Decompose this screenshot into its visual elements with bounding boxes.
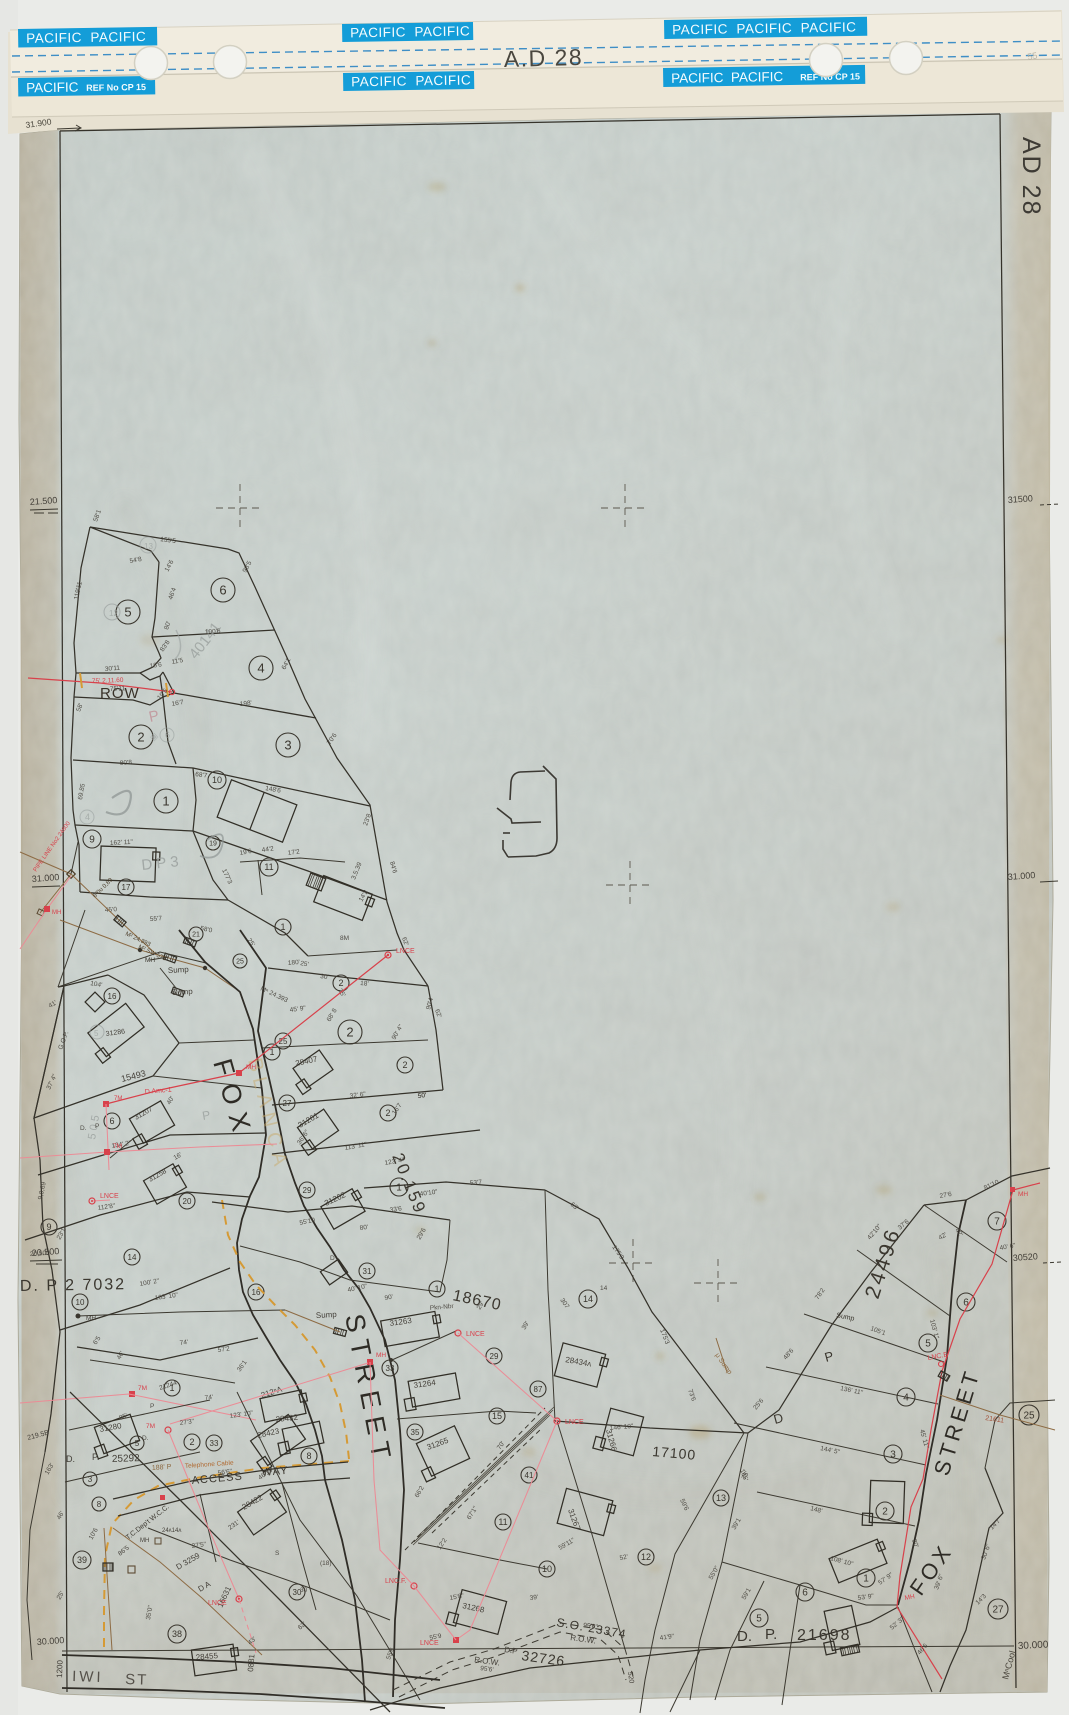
svg-text:87: 87 — [534, 1385, 543, 1394]
svg-text:31: 31 — [363, 1267, 372, 1276]
svg-text:14: 14 — [600, 1285, 608, 1292]
svg-text:5: 5 — [756, 1614, 762, 1625]
svg-text:1200: 1200 — [55, 1659, 65, 1678]
svg-text:D.P: D.P — [504, 1645, 518, 1656]
svg-text:2: 2 — [346, 1025, 353, 1040]
svg-text:198': 198' — [239, 700, 252, 708]
svg-text:31500: 31500 — [1007, 493, 1033, 505]
svg-text:20: 20 — [183, 1197, 192, 1206]
svg-text:PACIFIC PACIFIC: PACIFIC PACIFIC — [26, 29, 146, 46]
svg-text:Sump: Sump — [168, 965, 190, 975]
svg-text:1: 1 — [434, 1284, 439, 1294]
svg-text:55'7: 55'7 — [150, 915, 163, 923]
svg-text:1: 1 — [280, 922, 285, 932]
svg-text:15: 15 — [492, 1411, 502, 1421]
svg-text:AD 28: AD 28 — [1017, 137, 1045, 216]
svg-text:2: 2 — [189, 1437, 194, 1447]
svg-text:0881: 0881 — [246, 1653, 257, 1672]
svg-text:25292: 25292 — [112, 1453, 141, 1465]
svg-text:2: 2 — [338, 978, 343, 988]
svg-text:50': 50' — [418, 1092, 427, 1100]
svg-text:(18): (18) — [320, 1560, 332, 1567]
svg-text:PACIFIC: PACIFIC — [26, 80, 79, 96]
svg-text:1: 1 — [863, 1574, 869, 1585]
svg-text:1: 1 — [169, 1383, 174, 1393]
svg-text:19: 19 — [209, 841, 217, 848]
svg-text:6: 6 — [109, 1116, 114, 1126]
svg-text:5: 5 — [94, 1029, 99, 1038]
svg-text:162' 11": 162' 11" — [110, 839, 134, 847]
svg-text:55: 55 — [1027, 50, 1039, 62]
svg-text:6: 6 — [219, 583, 226, 598]
svg-text:6: 6 — [963, 1298, 969, 1309]
svg-text:LNC.F.: LNC.F. — [385, 1578, 406, 1585]
svg-text:75' 2.11.60: 75' 2.11.60 — [92, 677, 124, 685]
svg-text:PACIFIC PACIFIC: PACIFIC PACIFIC — [350, 23, 470, 40]
svg-text:S: S — [275, 1550, 280, 1557]
svg-text:33: 33 — [210, 1439, 219, 1448]
svg-text:MH: MH — [1018, 1191, 1028, 1198]
svg-text:21: 21 — [192, 932, 200, 939]
svg-text:35: 35 — [411, 1428, 420, 1437]
svg-text:31.000: 31.000 — [31, 872, 59, 884]
svg-text:39': 39' — [529, 1594, 538, 1602]
svg-text:P.: P. — [765, 1626, 777, 1643]
svg-text:13: 13 — [144, 542, 153, 551]
svg-text:MH: MH — [246, 1064, 256, 1071]
svg-text:Sump: Sump — [172, 987, 194, 997]
svg-text:9: 9 — [46, 1222, 51, 1232]
svg-text:2: 2 — [402, 1060, 407, 1070]
svg-text:D.: D. — [737, 1628, 752, 1645]
svg-text:3: 3 — [890, 1450, 896, 1461]
svg-text:MH: MH — [145, 957, 155, 964]
svg-text:3: 3 — [284, 738, 291, 753]
svg-text:29: 29 — [490, 1352, 499, 1361]
svg-text:7M: 7M — [114, 1096, 122, 1102]
svg-text:24ʌ14ʌ: 24ʌ14ʌ — [162, 1528, 181, 1534]
svg-text:2: 2 — [385, 1108, 390, 1118]
svg-text:27: 27 — [283, 1099, 292, 1108]
svg-text:D: D — [330, 1255, 335, 1262]
svg-text:80': 80' — [359, 1224, 368, 1232]
svg-text:6: 6 — [802, 1588, 808, 1599]
svg-text:10: 10 — [76, 1298, 85, 1307]
svg-text:14: 14 — [583, 1294, 593, 1304]
svg-text:LNCE: LNCE — [396, 948, 415, 955]
svg-text:LNCE: LNCE — [466, 1331, 485, 1338]
svg-text:13: 13 — [716, 1493, 726, 1503]
svg-text:180': 180' — [288, 959, 301, 967]
svg-text:7: 7 — [994, 1217, 1000, 1228]
svg-text:53'7: 53'7 — [470, 1179, 483, 1187]
svg-text:1: 1 — [396, 1183, 402, 1194]
svg-text:6: 6 — [165, 730, 170, 740]
svg-text:30'11: 30'11 — [105, 665, 121, 673]
svg-text:7M: 7M — [113, 1143, 122, 1150]
svg-text:5: 5 — [124, 605, 131, 620]
svg-text:12: 12 — [109, 609, 118, 618]
svg-text:PACIFIC PACIFIC: PACIFIC PACIFIC — [351, 72, 471, 89]
svg-text:188' P: 188' P — [152, 1464, 172, 1472]
svg-text:MH: MH — [376, 1352, 386, 1359]
svg-text:8: 8 — [306, 1451, 311, 1461]
svg-text:25': 25' — [300, 960, 310, 968]
svg-text:MH: MH — [52, 910, 61, 916]
svg-text:PACIFIC PACIFIC PACIFIC: PACIFIC PACIFIC PACIFIC — [672, 19, 856, 37]
svg-text:52': 52' — [619, 1554, 629, 1562]
svg-text:11: 11 — [498, 1517, 507, 1527]
svg-text:1: 1 — [162, 794, 169, 809]
svg-text:7M: 7M — [146, 1423, 155, 1430]
svg-text:16: 16 — [108, 992, 117, 1001]
svg-text:12: 12 — [641, 1552, 651, 1562]
svg-text:90': 90' — [384, 1294, 394, 1302]
svg-text:PACIFIC PACIFIC: PACIFIC PACIFIC — [671, 69, 783, 86]
svg-text:8M: 8M — [340, 935, 349, 942]
svg-text:18': 18' — [360, 980, 369, 988]
svg-text:100'6: 100'6 — [205, 628, 222, 636]
svg-text:4: 4 — [257, 661, 264, 676]
svg-text:20,500: 20,500 — [30, 1250, 51, 1258]
svg-text:LNCE: LNCE — [208, 1600, 227, 1607]
svg-text:21.500: 21.500 — [29, 495, 57, 507]
svg-text:31.000: 31.000 — [1007, 870, 1035, 882]
svg-text:30520: 30520 — [1012, 1251, 1038, 1263]
svg-text:A.D 28: A.D 28 — [503, 44, 583, 72]
svg-text:D.: D. — [80, 1125, 87, 1132]
svg-text:IWI: IWI — [72, 1668, 104, 1686]
svg-text:30: 30 — [300, 1587, 308, 1594]
svg-text:4: 4 — [903, 1393, 909, 1404]
svg-text:LNCE: LNCE — [100, 1193, 119, 1200]
svg-text:21698: 21698 — [797, 1627, 852, 1644]
svg-text:10: 10 — [542, 1564, 552, 1574]
svg-text:Sump: Sump — [316, 1310, 338, 1320]
svg-text:14: 14 — [128, 1253, 137, 1262]
svg-text:5: 5 — [925, 1339, 931, 1350]
svg-text:25: 25 — [236, 959, 244, 966]
svg-text:10: 10 — [212, 775, 222, 785]
svg-text:29: 29 — [303, 1186, 312, 1195]
svg-text:74': 74' — [179, 1339, 188, 1347]
svg-text:9: 9 — [89, 835, 95, 846]
svg-text:33: 33 — [386, 1364, 395, 1373]
svg-text:2: 2 — [137, 730, 144, 745]
svg-text:REF No CP 15: REF No CP 15 — [86, 82, 146, 93]
svg-text:30.000: 30.000 — [36, 1635, 64, 1647]
svg-text:LNCE: LNCE — [565, 1419, 584, 1426]
svg-text:25: 25 — [1023, 1411, 1035, 1422]
svg-text:ST: ST — [125, 1671, 149, 1689]
svg-text:D. P 2 7032: D. P 2 7032 — [20, 1276, 126, 1295]
svg-text:P: P — [150, 1403, 154, 1410]
svg-text:27: 27 — [992, 1605, 1004, 1616]
svg-text:2: 2 — [882, 1507, 888, 1518]
svg-text:◈: ◈ — [150, 731, 159, 743]
svg-text:MH: MH — [140, 1538, 149, 1544]
svg-text:75'11: 75'11 — [110, 685, 126, 693]
svg-text:30': 30' — [320, 973, 329, 981]
svg-text:7M: 7M — [138, 1385, 147, 1392]
svg-text:MH: MH — [86, 1315, 96, 1322]
svg-text:8: 8 — [97, 1500, 102, 1509]
svg-text:3: 3 — [88, 1475, 93, 1484]
svg-text:P: P — [95, 1123, 99, 1130]
svg-text:39: 39 — [77, 1555, 87, 1565]
svg-text:38: 38 — [172, 1629, 182, 1639]
svg-text:11: 11 — [264, 862, 273, 872]
svg-text:30.000: 30.000 — [1018, 1639, 1050, 1652]
svg-text:80'8: 80'8 — [120, 759, 133, 767]
svg-text:4: 4 — [85, 812, 90, 822]
svg-text:17: 17 — [122, 883, 131, 892]
svg-text:D.: D. — [66, 1454, 75, 1464]
